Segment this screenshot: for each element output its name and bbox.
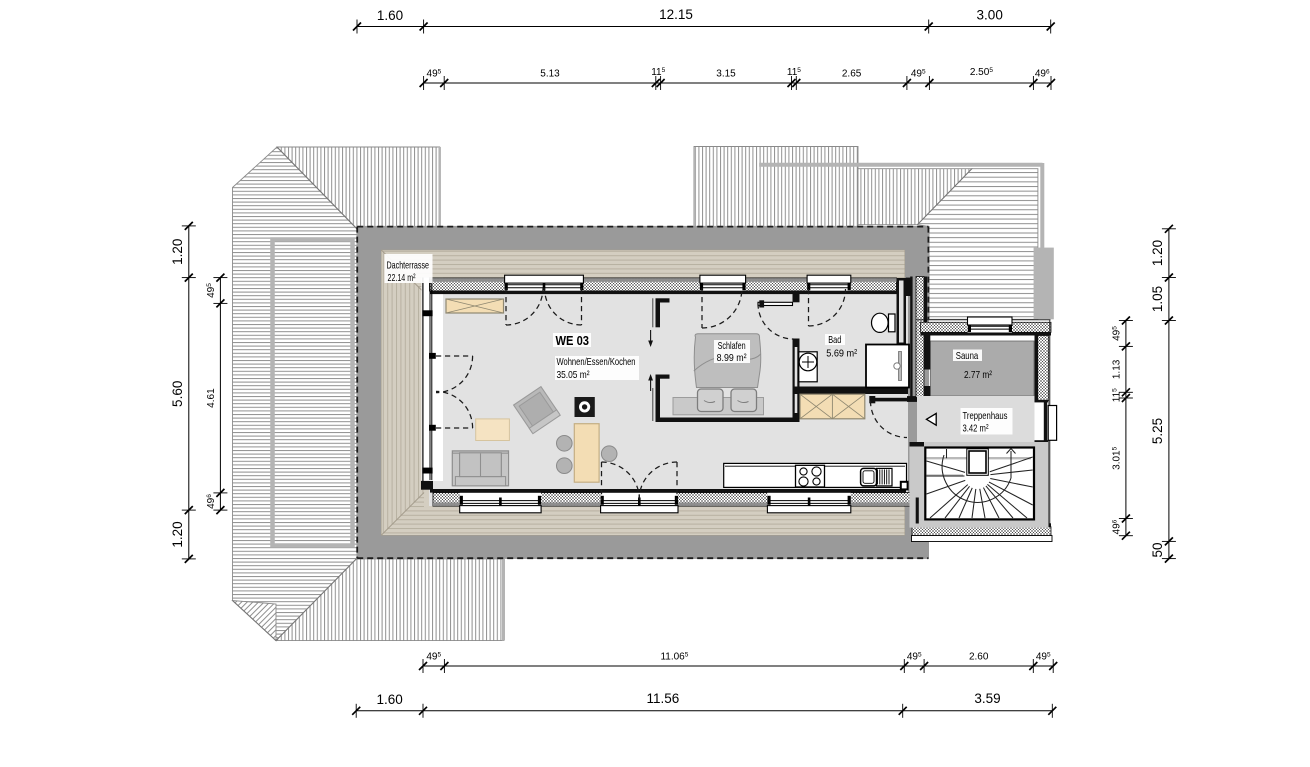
svg-text:22.14 m²: 22.14 m² bbox=[388, 273, 416, 284]
svg-text:5.60: 5.60 bbox=[170, 381, 185, 407]
svg-text:Bad: Bad bbox=[828, 335, 841, 346]
svg-text:2.77 m²: 2.77 m² bbox=[964, 370, 992, 381]
svg-text:Treppenhaus: Treppenhaus bbox=[963, 411, 1008, 422]
svg-text:12.15: 12.15 bbox=[659, 7, 693, 22]
svg-text:5.25: 5.25 bbox=[1150, 418, 1165, 444]
svg-text:1.20: 1.20 bbox=[170, 239, 185, 265]
svg-text:1.20: 1.20 bbox=[1150, 240, 1165, 266]
svg-text:Dachterrasse: Dachterrasse bbox=[387, 261, 430, 272]
svg-text:1.60: 1.60 bbox=[377, 8, 403, 23]
svg-text:11.065: 11.065 bbox=[660, 651, 688, 662]
svg-text:1.13: 1.13 bbox=[1112, 359, 1123, 379]
svg-text:4.61: 4.61 bbox=[206, 388, 217, 408]
svg-text:3.42 m²: 3.42 m² bbox=[963, 424, 989, 435]
svg-text:5.69 m²: 5.69 m² bbox=[826, 349, 858, 360]
svg-text:1.60: 1.60 bbox=[376, 692, 402, 707]
svg-text:11.56: 11.56 bbox=[647, 691, 680, 706]
svg-text:Schlafen: Schlafen bbox=[718, 341, 746, 352]
svg-text:Sauna: Sauna bbox=[956, 351, 979, 362]
svg-text:1.05: 1.05 bbox=[1150, 286, 1165, 312]
svg-text:Wohnen/Essen/Kochen: Wohnen/Essen/Kochen bbox=[557, 357, 636, 368]
svg-text:WE 03: WE 03 bbox=[556, 334, 590, 348]
svg-text:1.20: 1.20 bbox=[170, 521, 185, 547]
svg-text:3.59: 3.59 bbox=[974, 691, 1000, 706]
svg-text:2.60: 2.60 bbox=[969, 652, 989, 663]
svg-text:3.15: 3.15 bbox=[716, 69, 736, 80]
svg-text:2.65: 2.65 bbox=[842, 69, 862, 80]
svg-text:3.00: 3.00 bbox=[977, 8, 1003, 23]
svg-text:50: 50 bbox=[1150, 542, 1165, 557]
svg-text:8.99 m²: 8.99 m² bbox=[717, 353, 748, 364]
svg-text:35.05 m²: 35.05 m² bbox=[557, 370, 590, 381]
svg-text:5.13: 5.13 bbox=[540, 69, 560, 80]
